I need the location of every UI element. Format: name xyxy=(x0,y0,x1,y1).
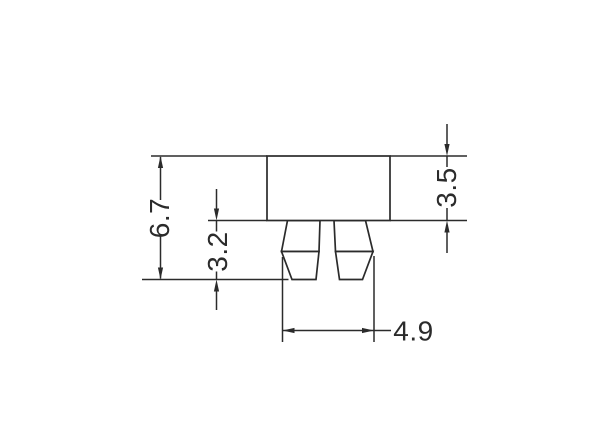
pin-left-upper xyxy=(282,221,321,252)
arrowhead-right-icon xyxy=(362,328,374,333)
part-outline xyxy=(267,156,390,280)
pin-left-tip xyxy=(282,252,320,280)
arrowhead-down-icon xyxy=(214,209,219,221)
drawing-canvas: 6.7 3.2 3.5 xyxy=(0,0,616,444)
arrowhead-up-icon xyxy=(158,156,163,168)
dim-label-overall-height: 6.7 xyxy=(144,198,175,238)
dim-pin-length: 3.2 xyxy=(202,189,267,310)
dim-label-body-height: 3.5 xyxy=(431,167,462,207)
part-body xyxy=(267,156,390,221)
dim-label-pin-length: 3.2 xyxy=(202,231,233,271)
arrowhead-left-icon xyxy=(283,328,295,333)
technical-drawing: 6.7 3.2 3.5 xyxy=(0,0,616,444)
dim-label-pin-span: 4.9 xyxy=(393,316,433,347)
dim-body-height: 3.5 xyxy=(390,124,467,253)
arrowhead-up-icon xyxy=(444,221,449,233)
arrowhead-up-icon xyxy=(214,280,219,292)
arrowhead-down-icon xyxy=(158,268,163,280)
arrowhead-down-icon xyxy=(444,144,449,156)
pin-right-upper xyxy=(334,221,373,252)
pin-right-tip xyxy=(336,252,374,280)
